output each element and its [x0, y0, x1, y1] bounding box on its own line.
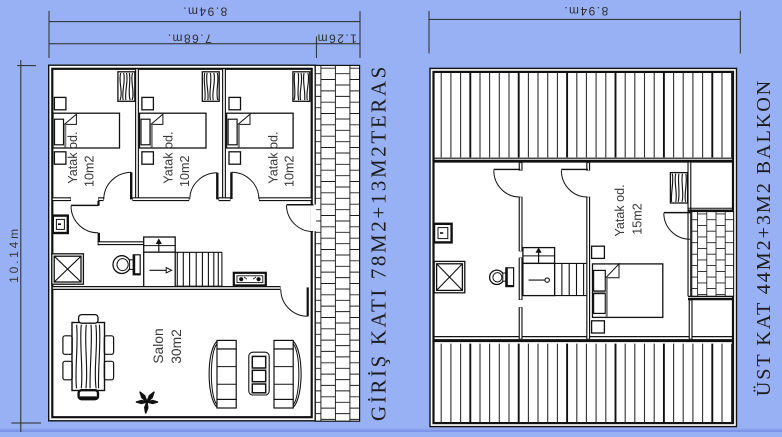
svg-text:ÜST KAT 44M2+3M2 BALKON: ÜST KAT 44M2+3M2 BALKON — [752, 79, 775, 396]
svg-text:15m2: 15m2 — [631, 203, 645, 235]
svg-text:1.26m: 1.26m — [316, 32, 357, 46]
svg-text:8.94m.: 8.94m. — [563, 4, 608, 18]
svg-text:GİRİŞ KATI 78M2+13M2TERAS: GİRİŞ KATI 78M2+13M2TERAS — [366, 64, 390, 421]
svg-text:10.14m: 10.14m — [7, 226, 21, 283]
svg-text:7.68m.: 7.68m. — [166, 32, 211, 46]
svg-text:8.94m.: 8.94m. — [182, 5, 227, 19]
svg-text:Yatak od.: Yatak od. — [613, 184, 627, 236]
svg-text:Yatak od.: Yatak od. — [267, 131, 281, 183]
svg-text:Salon: Salon — [151, 328, 166, 363]
svg-text:Yatak od.: Yatak od. — [162, 131, 176, 183]
svg-text:10m2: 10m2 — [178, 155, 192, 187]
svg-text:10m2: 10m2 — [83, 155, 97, 187]
svg-text:10m2: 10m2 — [283, 155, 297, 187]
svg-text:Yatak od.: Yatak od. — [66, 131, 80, 183]
svg-text:30m2: 30m2 — [169, 329, 184, 364]
